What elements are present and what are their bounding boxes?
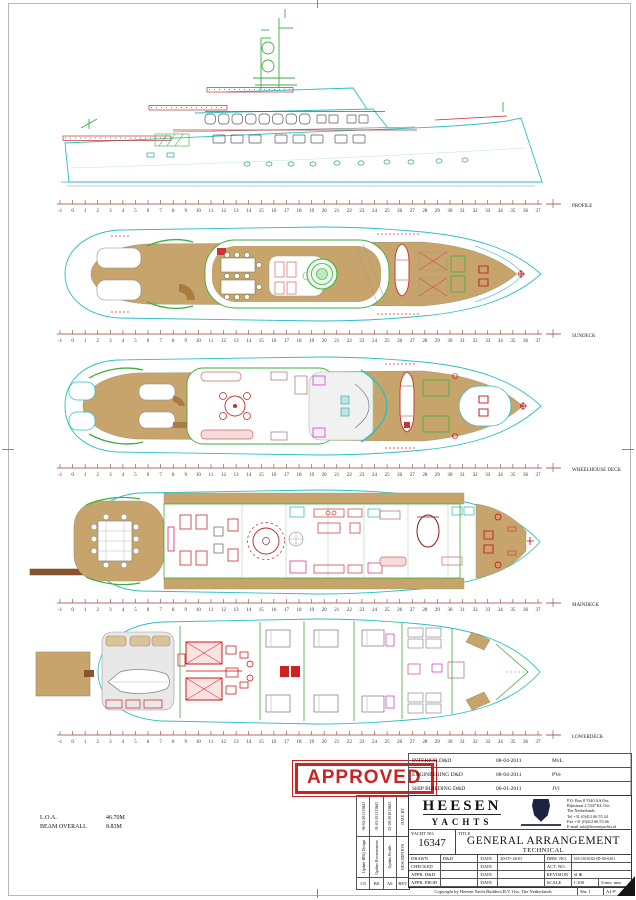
svg-text:34: 34 xyxy=(498,608,504,613)
svg-text:14: 14 xyxy=(246,740,252,745)
svg-text:16: 16 xyxy=(271,473,277,478)
svg-text:8: 8 xyxy=(172,339,175,344)
svg-text:7: 7 xyxy=(159,608,162,613)
svg-text:20: 20 xyxy=(322,339,328,344)
units-value: Units: mm xyxy=(599,879,631,886)
svg-text:26: 26 xyxy=(397,209,403,214)
svg-text:2: 2 xyxy=(96,339,99,344)
svg-text:22: 22 xyxy=(347,339,353,344)
svg-text:10: 10 xyxy=(196,740,202,745)
svg-text:21: 21 xyxy=(334,339,340,344)
lowerdeck-drawing xyxy=(28,616,547,728)
svg-text:-1: -1 xyxy=(58,473,63,478)
regmark-left xyxy=(2,449,14,450)
svg-text:-1: -1 xyxy=(58,740,63,745)
svg-text:28: 28 xyxy=(422,209,428,214)
svg-text:19: 19 xyxy=(309,473,315,478)
svg-text:4: 4 xyxy=(122,608,125,613)
svg-text:18: 18 xyxy=(297,339,303,344)
checked-row: CHECKED DATE ACT. NO. xyxy=(409,863,631,871)
svg-text:5: 5 xyxy=(134,209,137,214)
svg-text:20: 20 xyxy=(322,209,328,214)
revision-entry: 01-03-2011 D&D Update Roommasters B0 xyxy=(370,796,383,889)
svg-text:11: 11 xyxy=(209,608,214,613)
approval-row-interior: INTERIOR D&D 08-04-2011 MvL xyxy=(409,754,631,768)
svg-text:16: 16 xyxy=(271,209,277,214)
beam-label: BEAM OVERALL xyxy=(40,823,106,832)
svg-text:16: 16 xyxy=(271,339,277,344)
svg-text:6: 6 xyxy=(147,209,150,214)
svg-text:25: 25 xyxy=(385,339,391,344)
scale-value: 1:100 xyxy=(572,879,600,886)
drawing-title: GENERAL ARRANGEMENT xyxy=(456,836,631,847)
svg-text:17: 17 xyxy=(284,740,290,745)
svg-text:6: 6 xyxy=(147,608,150,613)
principal-dimensions: L.O.A. 46.70M BEAM OVERALL 8.83M xyxy=(40,814,150,832)
svg-text:13: 13 xyxy=(234,608,240,613)
svg-text:22: 22 xyxy=(347,209,353,214)
svg-text:23: 23 xyxy=(359,339,365,344)
svg-text:28: 28 xyxy=(422,740,428,745)
svg-text:10: 10 xyxy=(196,339,202,344)
yacht-number-value: 16347 xyxy=(409,837,455,849)
heesen-shield-logo xyxy=(515,796,567,829)
svg-text:11: 11 xyxy=(209,473,214,478)
revision-id: C0 xyxy=(357,878,369,889)
svg-text:17: 17 xyxy=(284,608,290,613)
svg-text:31: 31 xyxy=(460,339,466,344)
svg-text:6: 6 xyxy=(147,339,150,344)
svg-text:-1: -1 xyxy=(58,209,63,214)
approval-row-shipbuilding: SHIP BUILDING D&D 06-01-2011 JVl xyxy=(409,782,631,795)
maindeck-drawing xyxy=(28,487,547,595)
svg-text:8: 8 xyxy=(172,209,175,214)
svg-text:18: 18 xyxy=(297,608,303,613)
svg-text:15: 15 xyxy=(259,473,265,478)
svg-text:36: 36 xyxy=(523,209,529,214)
svg-text:12: 12 xyxy=(221,608,227,613)
svg-text:25: 25 xyxy=(385,473,391,478)
svg-text:22: 22 xyxy=(347,740,353,745)
svg-text:31: 31 xyxy=(460,740,466,745)
svg-text:4: 4 xyxy=(122,740,125,745)
drawing-title-cell: TITLE GENERAL ARRANGEMENT TECHNICAL xyxy=(456,830,631,854)
svg-text:6: 6 xyxy=(147,473,150,478)
station-ruler-sundeck: SUNDECK -1012345678910111213141516171819… xyxy=(55,329,635,345)
svg-text:16: 16 xyxy=(271,740,277,745)
revision-entry: 22-09-2010 D&D Update Profile A0 xyxy=(384,796,397,889)
svg-text:8: 8 xyxy=(172,740,175,745)
svg-text:7: 7 xyxy=(159,339,162,344)
svg-text:10: 10 xyxy=(196,608,202,613)
svg-text:16: 16 xyxy=(271,608,277,613)
svg-text:20: 20 xyxy=(322,473,328,478)
svg-text:32: 32 xyxy=(473,608,479,613)
view-label-sundeck: SUNDECK xyxy=(572,334,596,339)
svg-text:1: 1 xyxy=(84,740,87,745)
loa-value: 46.70M xyxy=(106,814,150,823)
svg-text:27: 27 xyxy=(410,339,416,344)
svg-text:0: 0 xyxy=(71,339,74,344)
svg-text:14: 14 xyxy=(246,473,252,478)
svg-text:37: 37 xyxy=(536,473,542,478)
svg-text:33: 33 xyxy=(485,608,491,613)
svg-text:19: 19 xyxy=(309,339,315,344)
svg-text:24: 24 xyxy=(372,209,378,214)
svg-text:5: 5 xyxy=(134,473,137,478)
svg-text:19: 19 xyxy=(309,209,315,214)
svg-text:29: 29 xyxy=(435,608,441,613)
svg-text:30: 30 xyxy=(447,339,453,344)
svg-text:0: 0 xyxy=(71,740,74,745)
svg-text:13: 13 xyxy=(234,740,240,745)
svg-text:30: 30 xyxy=(447,608,453,613)
svg-text:35: 35 xyxy=(510,608,516,613)
svg-text:26: 26 xyxy=(397,339,403,344)
svg-text:21: 21 xyxy=(334,740,340,745)
revision-strip: 06-04-2011 D&D Update BBQ Design C0 01-0… xyxy=(356,795,410,890)
svg-text:27: 27 xyxy=(410,740,416,745)
revision-entry: 06-04-2011 D&D Update BBQ Design C0 xyxy=(357,796,370,889)
svg-text:2: 2 xyxy=(96,608,99,613)
svg-text:34: 34 xyxy=(498,473,504,478)
view-label-maindeck: MAINDECK xyxy=(572,603,599,608)
svg-text:36: 36 xyxy=(523,608,529,613)
drawn-row: DRAWN D&D DATE 20-07-2010 DRW. NO. 163-1… xyxy=(409,855,631,863)
revision-date-by: 01-03-2011 D&D xyxy=(374,802,379,830)
svg-text:5: 5 xyxy=(134,740,137,745)
beam-value: 8.83M xyxy=(106,823,150,832)
approval-row-engineering: ENGINEERING D&D 08-04-2011 PVe xyxy=(409,768,631,782)
svg-text:25: 25 xyxy=(385,209,391,214)
svg-text:11: 11 xyxy=(209,339,214,344)
svg-text:0: 0 xyxy=(71,608,74,613)
revision-desc: Update Profile xyxy=(387,845,392,868)
sheet-number: Sht: 1 xyxy=(578,887,604,895)
svg-text:28: 28 xyxy=(422,608,428,613)
view-label-lowerdeck: LOWERDECK xyxy=(572,735,604,740)
svg-text:21: 21 xyxy=(334,608,340,613)
approval-initials: JVl xyxy=(552,786,627,792)
svg-text:1: 1 xyxy=(84,473,87,478)
svg-text:36: 36 xyxy=(523,740,529,745)
svg-text:10: 10 xyxy=(196,473,202,478)
svg-text:10: 10 xyxy=(196,209,202,214)
station-ruler-lowerdeck: LOWERDECK -10123456789101112131415161718… xyxy=(55,730,635,746)
svg-text:32: 32 xyxy=(473,209,479,214)
svg-text:14: 14 xyxy=(246,608,252,613)
svg-text:27: 27 xyxy=(410,608,416,613)
view-label-wheelhouse: WHEELHOUSE DECK xyxy=(572,468,621,473)
approval-initials: MvL xyxy=(552,758,627,764)
svg-text:24: 24 xyxy=(372,473,378,478)
svg-text:11: 11 xyxy=(209,209,214,214)
svg-text:26: 26 xyxy=(397,608,403,613)
svg-text:37: 37 xyxy=(536,740,542,745)
svg-text:9: 9 xyxy=(185,339,188,344)
svg-text:22: 22 xyxy=(347,473,353,478)
svg-text:15: 15 xyxy=(259,608,265,613)
svg-text:0: 0 xyxy=(71,209,74,214)
svg-text:36: 36 xyxy=(523,473,529,478)
svg-text:7: 7 xyxy=(159,740,162,745)
svg-text:12: 12 xyxy=(221,339,227,344)
title-block-title-row: YACHT NO. 16347 TITLE GENERAL ARRANGEMEN… xyxy=(409,830,631,855)
svg-text:23: 23 xyxy=(359,473,365,478)
svg-text:14: 14 xyxy=(246,209,252,214)
svg-text:29: 29 xyxy=(435,473,441,478)
brand-sub: YACHTS xyxy=(432,817,493,827)
svg-text:0: 0 xyxy=(71,473,74,478)
svg-text:5: 5 xyxy=(134,339,137,344)
svg-text:33: 33 xyxy=(485,740,491,745)
svg-text:28: 28 xyxy=(422,473,428,478)
svg-text:17: 17 xyxy=(284,473,290,478)
svg-text:12: 12 xyxy=(221,740,227,745)
tagline-bar xyxy=(521,824,561,827)
svg-text:21: 21 xyxy=(334,209,340,214)
svg-text:3: 3 xyxy=(109,740,112,745)
svg-text:30: 30 xyxy=(447,740,453,745)
appr-dd-row: APPR. D&D DATE REVISION ⊲ ⊕ xyxy=(409,871,631,879)
revision-desc: Update BBQ Design xyxy=(361,840,366,873)
svg-text:30: 30 xyxy=(447,209,453,214)
svg-text:24: 24 xyxy=(372,740,378,745)
svg-text:21: 21 xyxy=(334,473,340,478)
svg-text:34: 34 xyxy=(498,339,504,344)
svg-text:29: 29 xyxy=(435,209,441,214)
svg-text:3: 3 xyxy=(109,473,112,478)
yacht-number-cell: YACHT NO. 16347 xyxy=(409,830,456,854)
svg-text:23: 23 xyxy=(359,740,365,745)
svg-text:3: 3 xyxy=(109,608,112,613)
svg-text:36: 36 xyxy=(523,339,529,344)
svg-text:20: 20 xyxy=(322,740,328,745)
approvals-table: INTERIOR D&D 08-04-2011 MvL ENGINEERING … xyxy=(408,753,632,796)
svg-text:32: 32 xyxy=(473,473,479,478)
appr-prod-row: APPR. PROD DATE SCALE 1:100 Units: mm xyxy=(409,879,631,887)
svg-text:24: 24 xyxy=(372,339,378,344)
svg-text:32: 32 xyxy=(473,339,479,344)
svg-text:5: 5 xyxy=(134,608,137,613)
svg-text:9: 9 xyxy=(185,473,188,478)
svg-text:11: 11 xyxy=(209,740,214,745)
copyright-text: Copyright by Heesen Yacht Builders B.V. … xyxy=(409,887,578,895)
svg-text:37: 37 xyxy=(536,608,542,613)
brand: HEESEN YACHTS xyxy=(409,796,515,829)
station-ruler-wheelhouse: WHEELHOUSE DECK -10123456789101112131415… xyxy=(55,463,635,479)
svg-text:9: 9 xyxy=(185,209,188,214)
revision-header-desc: DESCRIPTION xyxy=(400,844,405,870)
svg-text:12: 12 xyxy=(221,473,227,478)
projection-symbol: ⊲ ⊕ xyxy=(572,871,631,878)
svg-text:3: 3 xyxy=(109,209,112,214)
svg-text:34: 34 xyxy=(498,740,504,745)
svg-text:3: 3 xyxy=(109,339,112,344)
svg-text:17: 17 xyxy=(284,209,290,214)
company-address: P.O. Box 8 5340 AA Oss Rijnstraat 2 5347… xyxy=(567,796,631,829)
title-block-brand-row: HEESEN YACHTS P.O. Box 8 5340 AA Oss Rij… xyxy=(409,796,631,830)
revision-id: A0 xyxy=(384,878,396,889)
drawing-sheet: PROFILE -1012345678910111213141516171819… xyxy=(0,0,636,900)
svg-text:1: 1 xyxy=(84,209,87,214)
svg-text:6: 6 xyxy=(147,740,150,745)
approval-initials: PVe xyxy=(552,772,627,778)
svg-text:15: 15 xyxy=(259,209,265,214)
title-block: HEESEN YACHTS P.O. Box 8 5340 AA Oss Rij… xyxy=(408,795,632,888)
svg-text:13: 13 xyxy=(234,339,240,344)
copyright-row: Copyright by Heesen Yacht Builders B.V. … xyxy=(409,887,631,895)
svg-text:31: 31 xyxy=(460,608,466,613)
svg-text:29: 29 xyxy=(435,339,441,344)
svg-text:-1: -1 xyxy=(58,339,63,344)
shield-icon xyxy=(532,799,550,822)
svg-text:28: 28 xyxy=(422,339,428,344)
svg-text:4: 4 xyxy=(122,339,125,344)
svg-text:15: 15 xyxy=(259,740,265,745)
approval-dept: INTERIOR D&D xyxy=(409,758,496,764)
svg-text:8: 8 xyxy=(172,608,175,613)
svg-text:35: 35 xyxy=(510,473,516,478)
view-label-profile: PROFILE xyxy=(572,204,592,209)
svg-text:35: 35 xyxy=(510,209,516,214)
svg-text:-1: -1 xyxy=(58,608,63,613)
svg-text:25: 25 xyxy=(385,608,391,613)
approval-dept: ENGINEERING D&D xyxy=(409,772,496,778)
svg-text:23: 23 xyxy=(359,608,365,613)
revision-header-date-by: DATE BY xyxy=(400,808,405,825)
svg-text:1: 1 xyxy=(84,339,87,344)
svg-text:7: 7 xyxy=(159,473,162,478)
revision-date-by: 06-04-2011 D&D xyxy=(361,802,366,830)
svg-text:37: 37 xyxy=(536,339,542,344)
revision-date-by: 22-09-2010 D&D xyxy=(387,802,392,831)
sundeck-drawing xyxy=(55,222,547,326)
loa-label: L.O.A. xyxy=(40,814,106,823)
drawing-number: 163-1010102-ID-00-0201 xyxy=(572,855,631,862)
svg-text:35: 35 xyxy=(510,339,516,344)
svg-text:2: 2 xyxy=(96,209,99,214)
svg-text:2: 2 xyxy=(96,473,99,478)
station-ruler-maindeck: MAINDECK -101234567891011121314151617181… xyxy=(55,598,635,614)
revision-id: B0 xyxy=(370,878,382,889)
svg-text:4: 4 xyxy=(122,209,125,214)
svg-text:23: 23 xyxy=(359,209,365,214)
svg-text:19: 19 xyxy=(309,608,315,613)
wheelhouse-deck-drawing xyxy=(55,352,547,460)
svg-text:4: 4 xyxy=(122,473,125,478)
profile-drawing xyxy=(55,6,547,204)
svg-text:33: 33 xyxy=(485,473,491,478)
brand-name: HEESEN xyxy=(423,798,502,815)
svg-text:12: 12 xyxy=(221,209,227,214)
svg-text:33: 33 xyxy=(485,209,491,214)
approval-dept: SHIP BUILDING D&D xyxy=(409,786,496,792)
svg-text:37: 37 xyxy=(536,209,542,214)
svg-text:35: 35 xyxy=(510,740,516,745)
svg-text:27: 27 xyxy=(410,209,416,214)
svg-text:9: 9 xyxy=(185,740,188,745)
svg-text:20: 20 xyxy=(322,608,328,613)
svg-text:19: 19 xyxy=(309,740,315,745)
regmark-right xyxy=(622,449,634,450)
svg-text:29: 29 xyxy=(435,740,441,745)
svg-text:30: 30 xyxy=(447,473,453,478)
svg-text:31: 31 xyxy=(460,473,466,478)
svg-text:1: 1 xyxy=(84,608,87,613)
svg-text:34: 34 xyxy=(498,209,504,214)
svg-text:14: 14 xyxy=(246,339,252,344)
svg-text:9: 9 xyxy=(185,608,188,613)
address-line: E-mail info@heesenyachts.nl xyxy=(567,824,631,829)
title-block-data-grid: DRAWN D&D DATE 20-07-2010 DRW. NO. 163-1… xyxy=(409,855,631,887)
svg-text:18: 18 xyxy=(297,209,303,214)
drawing-subtitle: TECHNICAL xyxy=(456,847,631,854)
approval-date: 08-04-2011 xyxy=(496,772,552,778)
svg-text:2: 2 xyxy=(96,740,99,745)
svg-text:22: 22 xyxy=(347,608,353,613)
svg-text:18: 18 xyxy=(297,473,303,478)
svg-text:24: 24 xyxy=(372,608,378,613)
station-ruler-profile: PROFILE -1012345678910111213141516171819… xyxy=(55,199,635,215)
approval-date: 08-04-2011 xyxy=(496,758,552,764)
svg-text:17: 17 xyxy=(284,339,290,344)
yacht-number-label: YACHT NO. xyxy=(409,830,455,836)
svg-text:26: 26 xyxy=(397,473,403,478)
svg-text:25: 25 xyxy=(385,740,391,745)
svg-text:31: 31 xyxy=(460,209,466,214)
svg-text:13: 13 xyxy=(234,209,240,214)
svg-text:26: 26 xyxy=(397,740,403,745)
svg-text:7: 7 xyxy=(159,209,162,214)
regmark-bottom xyxy=(317,889,318,898)
svg-text:33: 33 xyxy=(485,339,491,344)
svg-text:18: 18 xyxy=(297,740,303,745)
svg-text:32: 32 xyxy=(473,740,479,745)
svg-text:13: 13 xyxy=(234,473,240,478)
svg-text:27: 27 xyxy=(410,473,416,478)
svg-text:8: 8 xyxy=(172,473,175,478)
revision-desc: Update Roommasters xyxy=(374,840,379,875)
approval-date: 06-01-2011 xyxy=(496,786,552,792)
svg-text:15: 15 xyxy=(259,339,265,344)
